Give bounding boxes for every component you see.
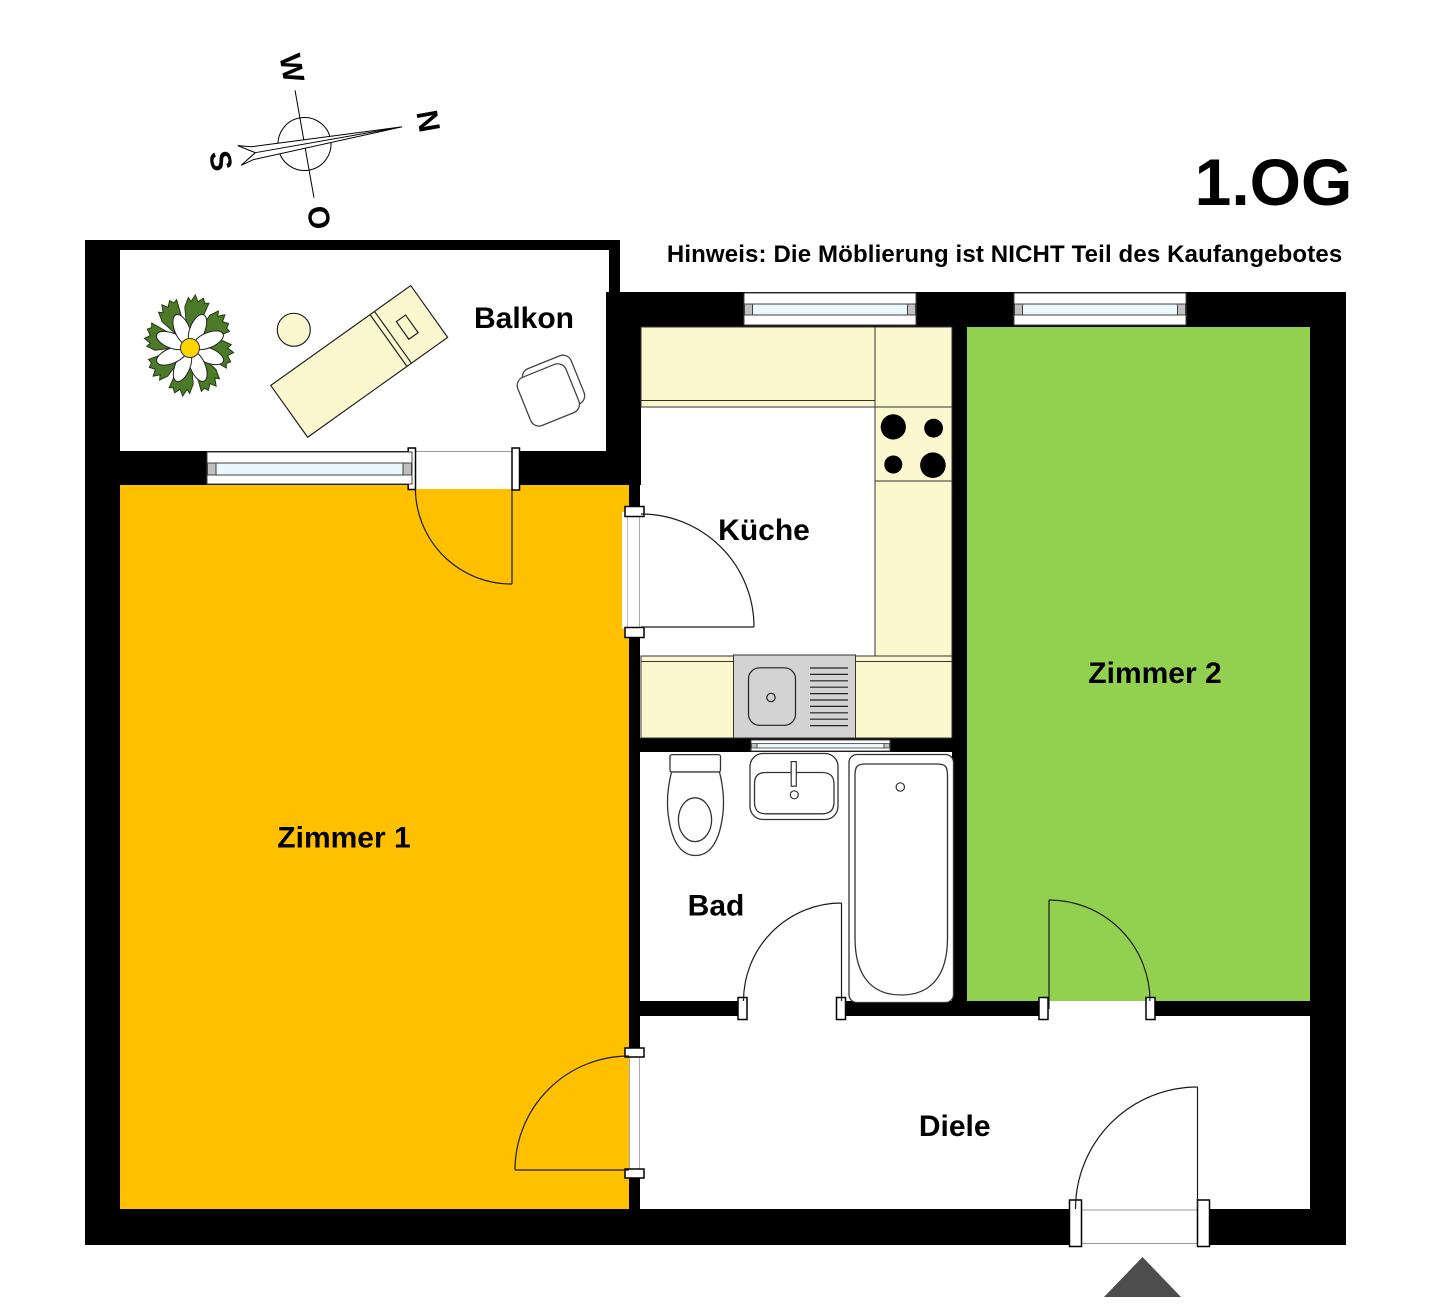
svg-text:Zimmer 2: Zimmer 2 [1088,657,1221,690]
svg-text:Hinweis: Die Möblierung ist NI: Hinweis: Die Möblierung ist NICHT Teil d… [667,241,1342,268]
svg-text:S: S [202,148,238,173]
svg-text:Diele: Diele [919,1110,991,1143]
svg-text:N: N [409,108,445,135]
svg-text:Zimmer 1: Zimmer 1 [277,822,410,855]
svg-text:Bad: Bad [688,890,745,923]
svg-text:1.OG: 1.OG [1195,145,1353,219]
svg-text:Balkon: Balkon [474,302,574,335]
svg-text:Küche: Küche [718,514,810,547]
svg-text:W: W [272,51,310,85]
svg-text:O: O [300,203,337,232]
